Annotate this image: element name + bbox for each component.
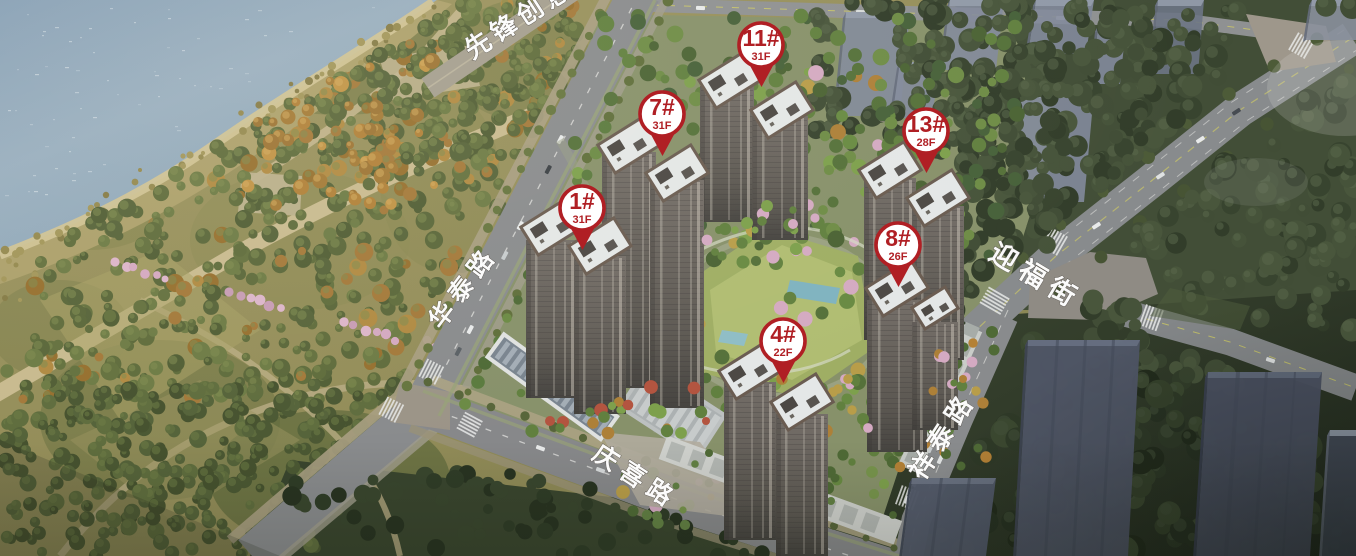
- svg-text:31F: 31F: [573, 214, 592, 226]
- svg-text:11#: 11#: [742, 25, 779, 51]
- svg-text:7#: 7#: [649, 94, 675, 120]
- svg-text:22F: 22F: [774, 347, 793, 359]
- svg-text:13#: 13#: [907, 111, 946, 137]
- svg-text:26F: 26F: [889, 251, 908, 263]
- svg-text:31F: 31F: [653, 120, 672, 132]
- svg-text:4#: 4#: [770, 321, 796, 347]
- svg-text:31F: 31F: [752, 51, 771, 63]
- svg-text:8#: 8#: [885, 225, 911, 251]
- svg-text:28F: 28F: [917, 137, 936, 149]
- svg-text:1#: 1#: [569, 188, 595, 214]
